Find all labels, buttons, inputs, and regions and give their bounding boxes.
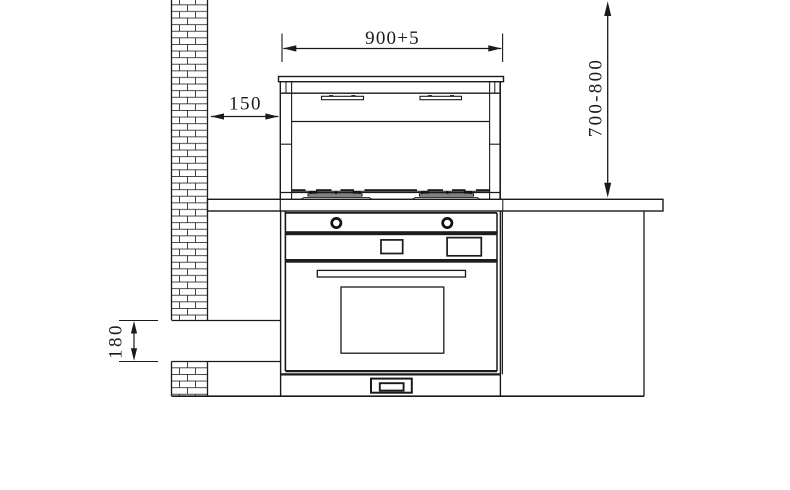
svg-text:900+5: 900+5 xyxy=(365,28,420,49)
svg-text:150: 150 xyxy=(229,94,262,115)
svg-text:180: 180 xyxy=(106,323,127,359)
svg-text:700-800: 700-800 xyxy=(586,58,607,137)
